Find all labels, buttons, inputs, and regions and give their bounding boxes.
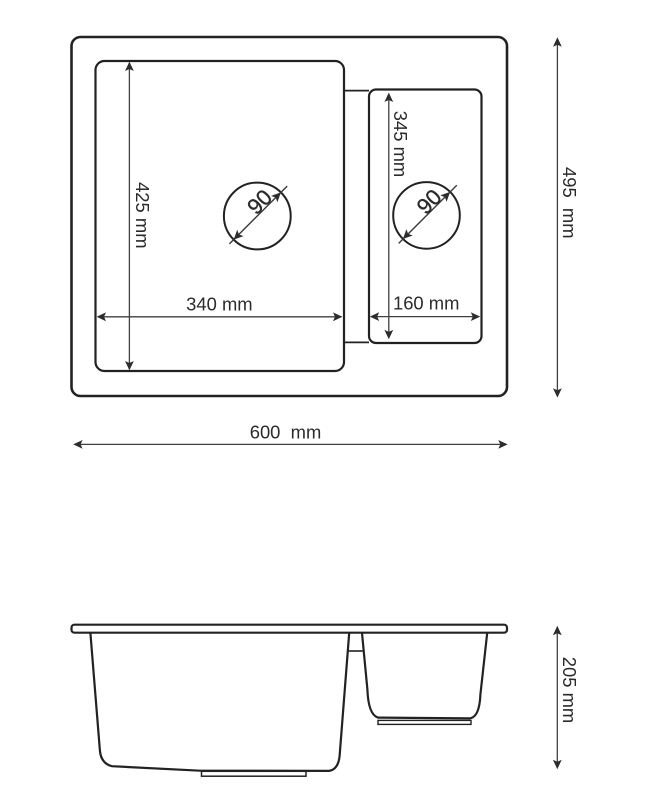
svg-text:205 mm: 205 mm bbox=[559, 657, 580, 723]
svg-text:160 mm: 160 mm bbox=[393, 293, 459, 314]
svg-text:600 mm: 600 mm bbox=[250, 422, 322, 443]
svg-text:425 mm: 425 mm bbox=[132, 182, 153, 248]
svg-text:495 mm: 495 mm bbox=[559, 167, 580, 239]
svg-text:90: 90 bbox=[412, 184, 447, 219]
svg-text:345 mm: 345 mm bbox=[390, 111, 411, 177]
svg-text:340 mm: 340 mm bbox=[186, 293, 252, 314]
svg-text:90: 90 bbox=[242, 184, 277, 219]
